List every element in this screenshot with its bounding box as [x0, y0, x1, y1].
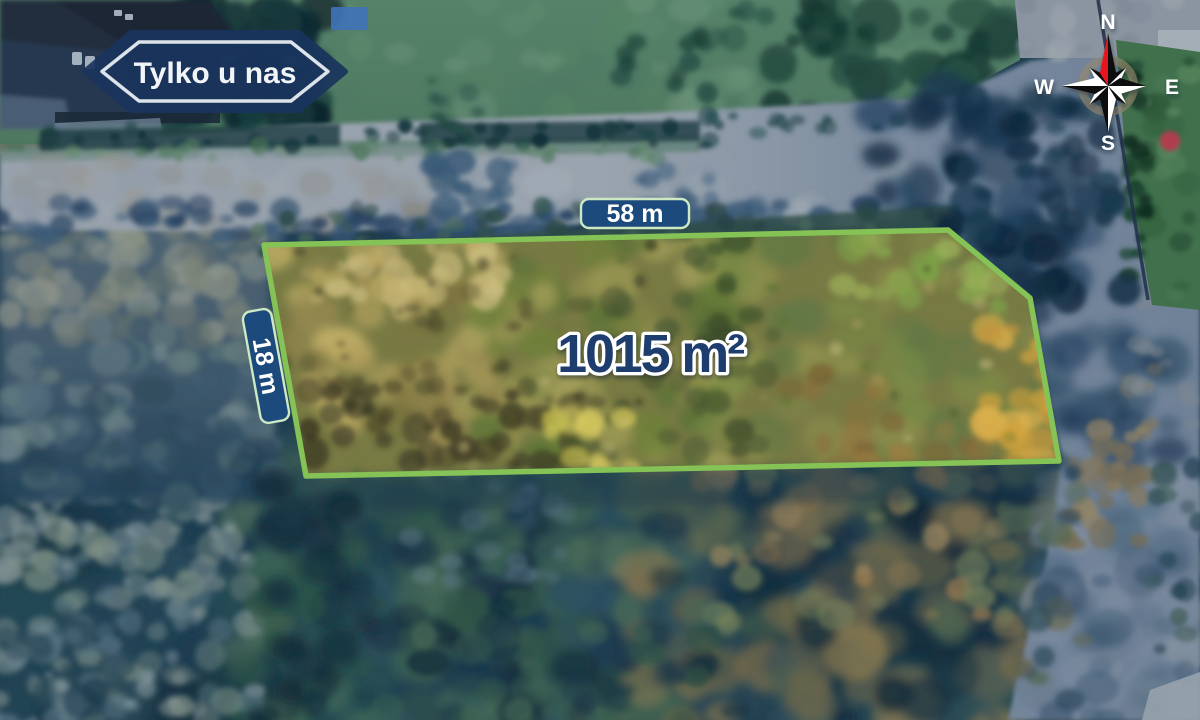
- svg-text:E: E: [1165, 76, 1179, 99]
- svg-text:58 m: 58 m: [607, 200, 664, 228]
- svg-text:S: S: [1101, 132, 1115, 155]
- svg-text:1015 m²: 1015 m²: [557, 324, 744, 384]
- svg-text:W: W: [1034, 76, 1054, 99]
- svg-text:Tylko u nas: Tylko u nas: [134, 57, 297, 90]
- svg-text:N: N: [1100, 11, 1115, 34]
